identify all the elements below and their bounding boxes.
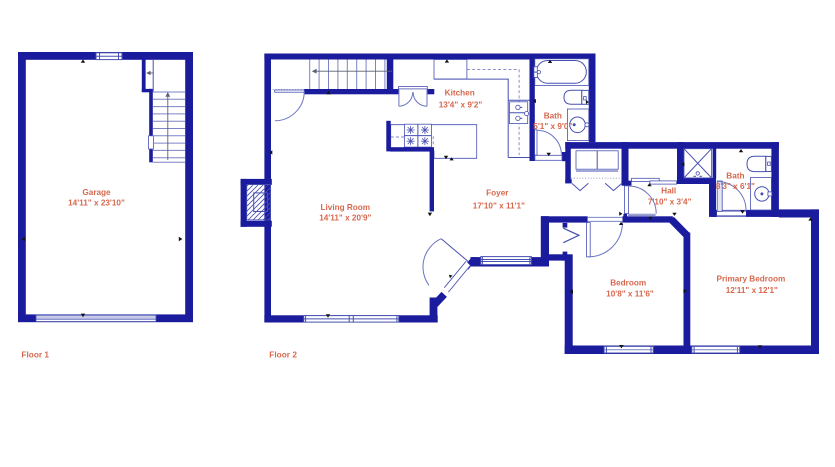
svg-text:Floor 2: Floor 2 (269, 350, 297, 360)
svg-text:14'11" x 20'9": 14'11" x 20'9" (319, 214, 371, 223)
svg-text:12'11" x 12'1": 12'11" x 12'1" (726, 286, 778, 295)
svg-text:Living Room: Living Room (321, 203, 371, 212)
svg-text:5'1" x 9'0": 5'1" x 9'0" (533, 122, 572, 131)
svg-text:Garage: Garage (82, 188, 111, 197)
svg-text:8'3" x 6'1": 8'3" x 6'1" (716, 182, 755, 191)
svg-text:Bath: Bath (544, 112, 562, 121)
svg-text:Floor 1: Floor 1 (21, 350, 49, 360)
svg-text:Primary Bedroom: Primary Bedroom (717, 274, 786, 283)
svg-text:Hall: Hall (661, 187, 676, 196)
svg-text:13'4" x 9'2": 13'4" x 9'2" (439, 100, 483, 109)
svg-text:Foyer: Foyer (486, 189, 509, 198)
svg-text:Kitchen: Kitchen (445, 89, 475, 98)
svg-text:17'10" x 11'1": 17'10" x 11'1" (473, 201, 525, 210)
svg-text:10'8" x 11'6": 10'8" x 11'6" (606, 290, 654, 299)
svg-text:14'11" x 23'10": 14'11" x 23'10" (68, 199, 125, 208)
svg-text:Bath: Bath (726, 172, 744, 181)
svg-text:Bedroom: Bedroom (610, 279, 646, 288)
svg-text:7'10" x 3'4": 7'10" x 3'4" (648, 197, 692, 206)
